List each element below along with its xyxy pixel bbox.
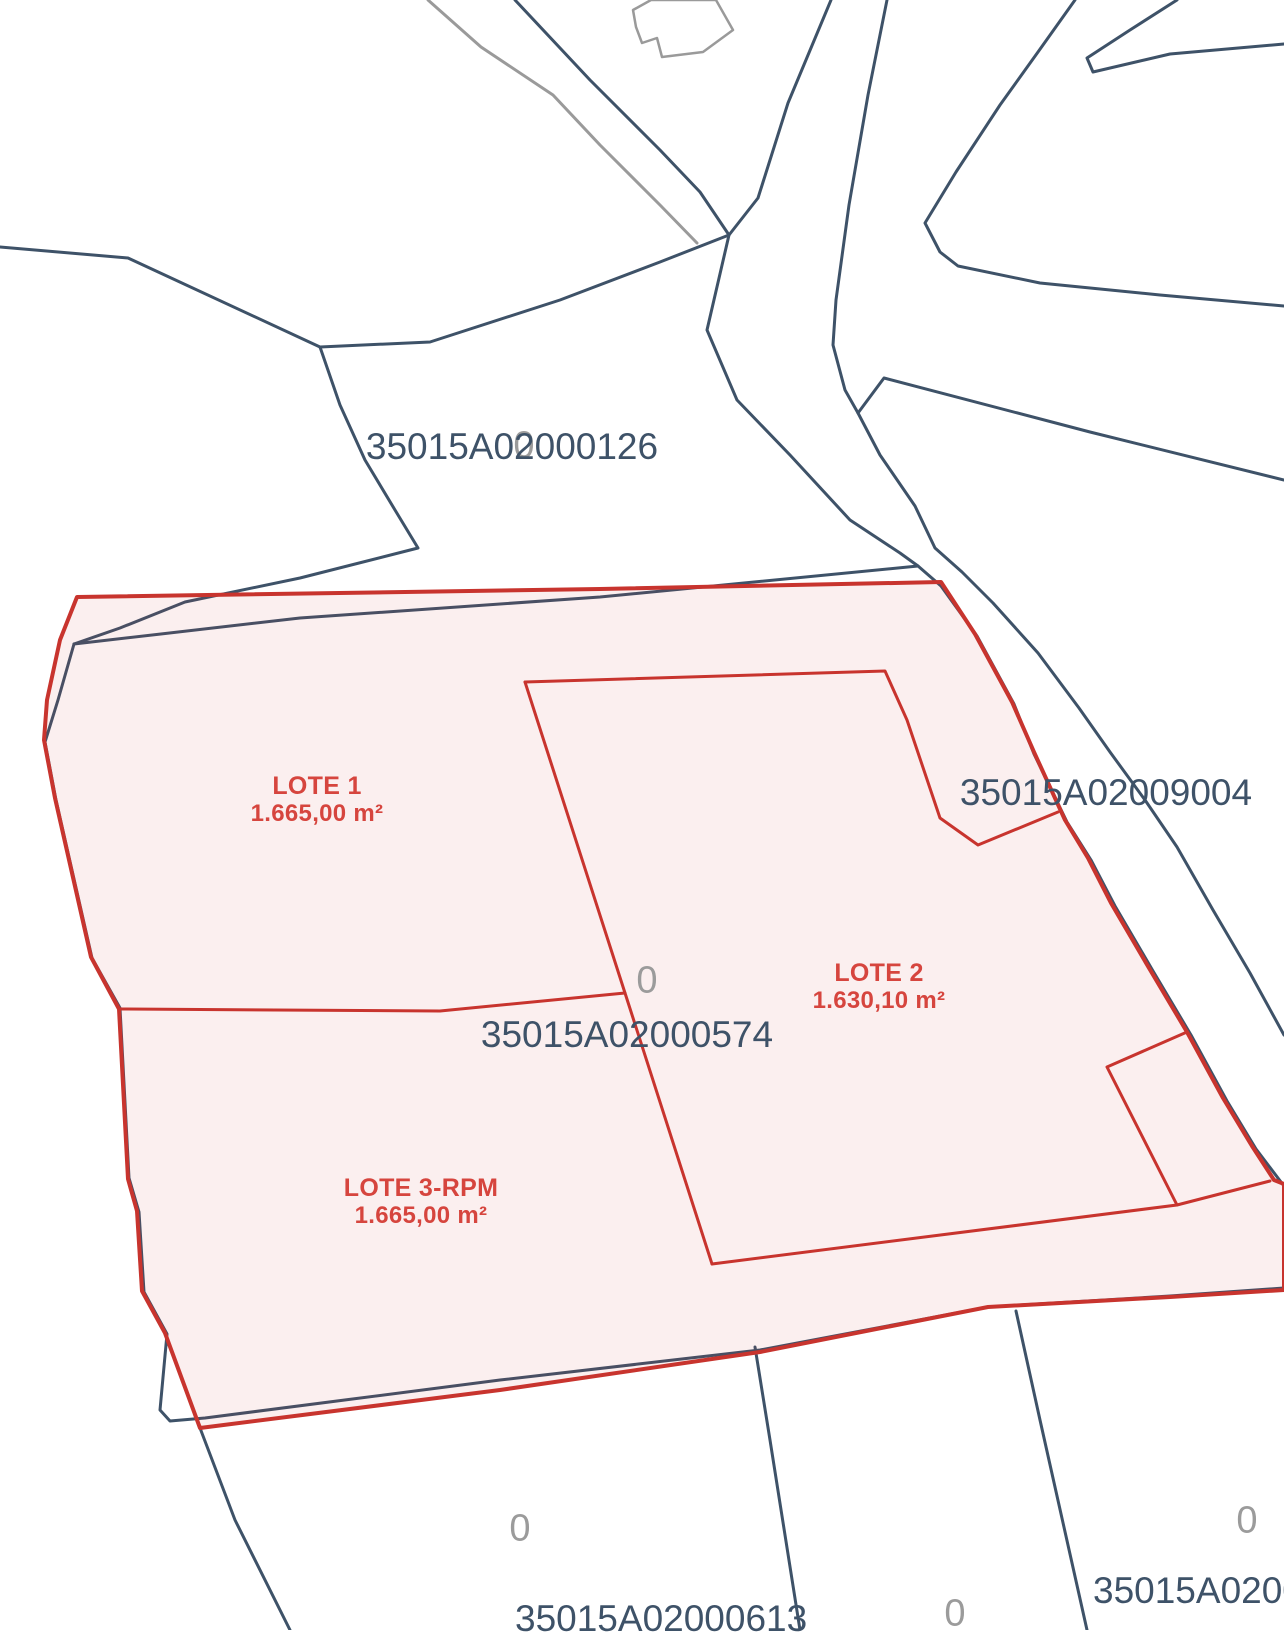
boundary-to-junction (320, 235, 729, 347)
boundary-top-right-step (1087, 0, 1284, 72)
boundary-northwest (0, 247, 320, 347)
survey-overlay (44, 582, 1284, 1428)
boundary-hook-southeast (858, 378, 1284, 480)
boundary-bottom-left (200, 1428, 290, 1630)
road-edge-gray (428, 0, 697, 243)
map-canvas[interactable] (0, 0, 1284, 1630)
surveyed-parcel-polygon (44, 582, 1284, 1428)
gray-features (428, 0, 733, 243)
boundary-bottom-parcel613-west (755, 1347, 800, 1630)
boundary-bottom-parcel613-east (1016, 1311, 1087, 1630)
boundary-upper-road-west (515, 0, 729, 235)
map-viewport[interactable]: { "map": { "parcel_labels": { "p126": "3… (0, 0, 1284, 1630)
building-outline (633, 0, 733, 57)
